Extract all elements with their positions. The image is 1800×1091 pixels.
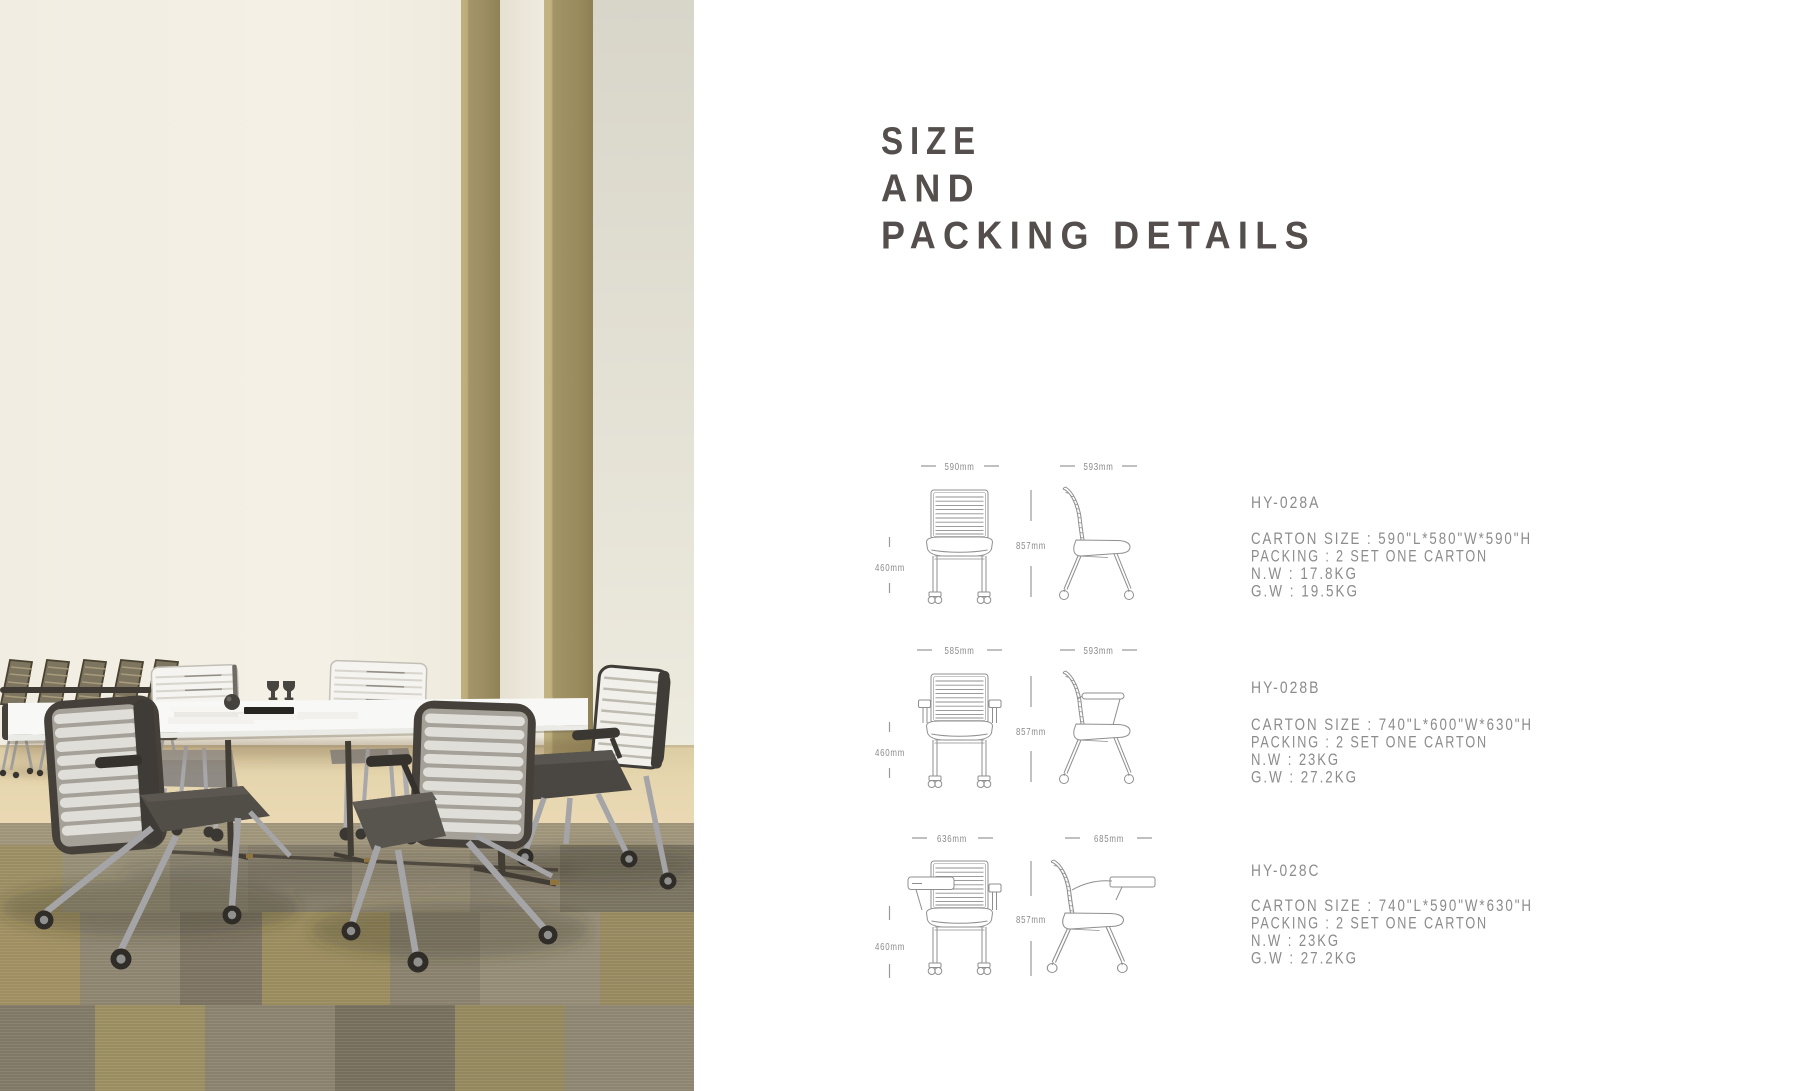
svg-text:857mm: 857mm [1016, 540, 1046, 552]
svg-text:585mm: 585mm [945, 645, 975, 657]
svg-text:CARTON SIZE : 740"L*590"W*630": CARTON SIZE : 740"L*590"W*630"H [1251, 896, 1533, 915]
svg-text:857mm: 857mm [1016, 914, 1046, 926]
svg-text:G.W : 19.5KG: G.W : 19.5KG [1251, 582, 1359, 601]
svg-text:PACKING DETAILS: PACKING DETAILS [881, 215, 1316, 258]
svg-text:CARTON SIZE : 740"L*600"W*630": CARTON SIZE : 740"L*600"W*630"H [1251, 715, 1533, 734]
svg-text:AND: AND [881, 168, 981, 211]
svg-text:460mm: 460mm [875, 941, 905, 953]
svg-text:460mm: 460mm [875, 562, 905, 574]
svg-text:SIZE: SIZE [881, 120, 982, 163]
svg-text:N.W : 23KG: N.W : 23KG [1251, 750, 1340, 769]
svg-text:HY-028A: HY-028A [1251, 493, 1321, 512]
svg-text:N.W : 23KG: N.W : 23KG [1251, 931, 1340, 950]
svg-text:HY-028B: HY-028B [1251, 678, 1321, 697]
svg-text:G.W : 27.2KG: G.W : 27.2KG [1251, 768, 1358, 787]
svg-text:CARTON SIZE : 590"L*580"W*590": CARTON SIZE : 590"L*580"W*590"H [1251, 529, 1532, 548]
svg-text:593mm: 593mm [1084, 645, 1114, 657]
svg-text:685mm: 685mm [1094, 833, 1124, 845]
svg-text:G.W : 27.2KG: G.W : 27.2KG [1251, 949, 1358, 968]
svg-text:636mm: 636mm [937, 833, 967, 845]
svg-text:590mm: 590mm [945, 461, 975, 473]
svg-text:460mm: 460mm [875, 747, 905, 759]
svg-text:N.W : 17.8KG: N.W : 17.8KG [1251, 564, 1358, 583]
svg-text:593mm: 593mm [1084, 461, 1114, 473]
svg-text:PACKING : 2 SET ONE CARTON: PACKING : 2 SET ONE CARTON [1251, 914, 1488, 933]
svg-text:PACKING : 2 SET ONE CARTON: PACKING : 2 SET ONE CARTON [1251, 547, 1488, 566]
svg-text:PACKING : 2 SET ONE CARTON: PACKING : 2 SET ONE CARTON [1251, 733, 1488, 752]
svg-text:HY-028C: HY-028C [1251, 861, 1321, 880]
svg-text:857mm: 857mm [1016, 726, 1046, 738]
